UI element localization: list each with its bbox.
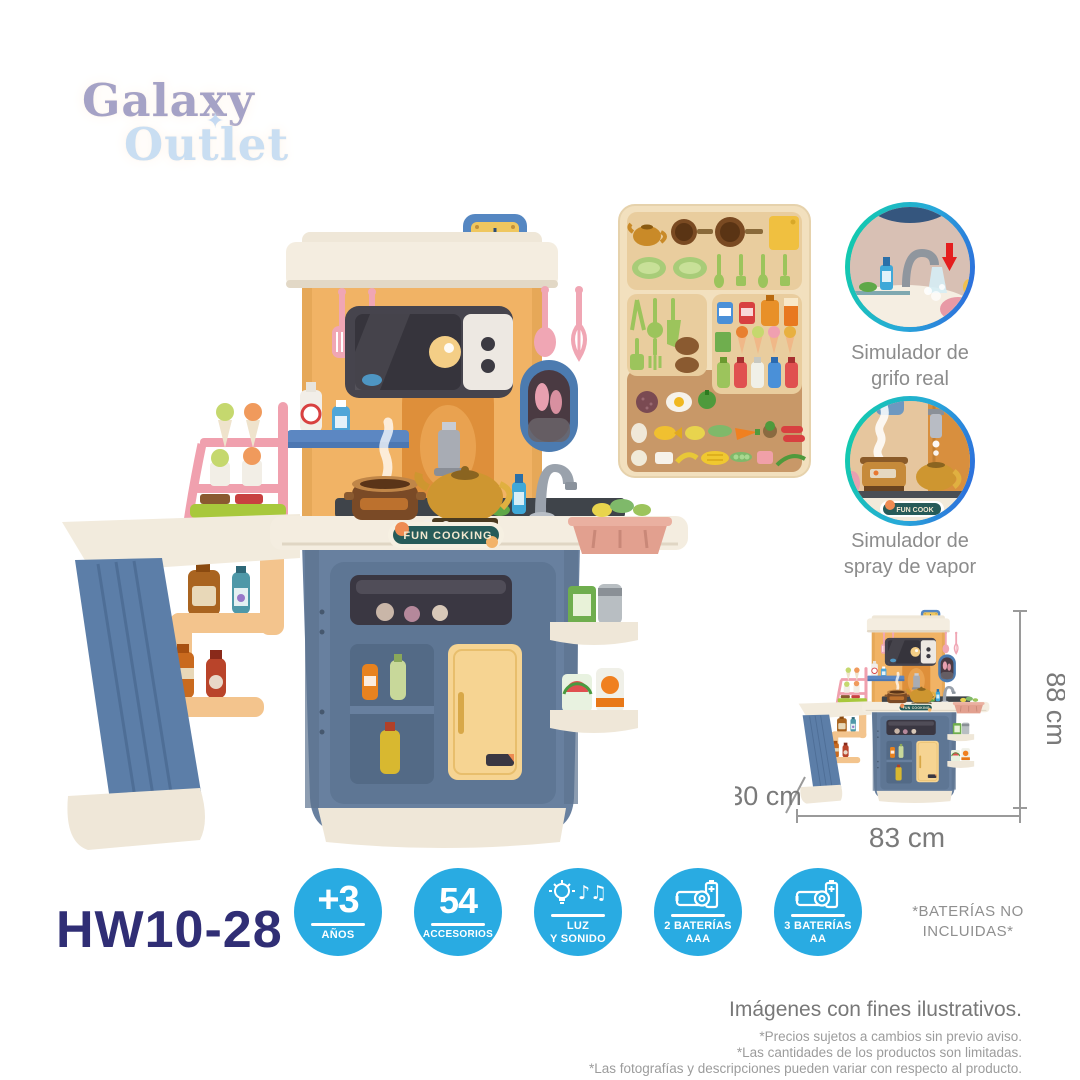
veggie	[859, 282, 877, 292]
accessories-board	[617, 202, 812, 480]
badge-batteries-aaa: 2 BATERÍAS AAA	[654, 868, 742, 956]
badge-divider	[671, 914, 725, 917]
disclaimer: Imágenes con fines ilustrativos. *Precio…	[462, 998, 1022, 1077]
badge-age: +3 AÑOS	[294, 868, 382, 956]
depth-label: 30 cm	[735, 781, 802, 811]
battery-note: *BATERÍAS NO INCLUIDAS*	[878, 902, 1058, 942]
lightbulb-icon	[549, 880, 575, 908]
badge-divider	[431, 923, 485, 926]
disclaimer-title: Imágenes con fines ilustrativos.	[462, 998, 1022, 1022]
mini-brand-pill: FUN COOK	[880, 500, 944, 517]
music-notes-icon: ♪♫	[578, 884, 607, 903]
battery-icon	[795, 879, 841, 909]
feature-caption-vapor: Simulador de spray de vapor	[810, 528, 1010, 580]
vapor-closeup: FUN COOK	[850, 401, 970, 521]
product-photo-kitchen: FUN COOKING	[50, 192, 690, 864]
width-label: 83 cm	[869, 822, 945, 853]
badge-divider	[551, 914, 605, 917]
promo-poster: Galaxy ✦ Outlet	[0, 0, 1080, 1080]
feature-circle-vapor: FUN COOK	[845, 396, 975, 526]
badge-batteries-aa: 3 BATERÍAS AA	[774, 868, 862, 956]
brand-logo: Galaxy ✦ Outlet	[82, 74, 322, 184]
badge-light-sound: ♪♫ LUZ Y SONIDO	[534, 868, 622, 956]
dimension-figure: 88 cm 83 cm 30 cm	[735, 595, 1065, 865]
height-label: 88 cm	[1041, 672, 1065, 746]
badge-divider	[791, 914, 845, 917]
badge-accessories: 54 ACCESORIOS	[414, 868, 502, 956]
badge-divider	[311, 923, 365, 926]
faucet-closeup	[850, 207, 970, 327]
battery-icon	[675, 879, 721, 909]
svg-text:FUN COOK: FUN COOK	[896, 507, 933, 514]
dispenser	[930, 414, 942, 438]
feature-circle-faucet	[845, 202, 975, 332]
brand-word-outlet: Outlet	[124, 118, 289, 171]
model-code: HW10-28	[56, 900, 283, 960]
feature-caption-faucet: Simulador de grifo real	[810, 340, 1010, 392]
